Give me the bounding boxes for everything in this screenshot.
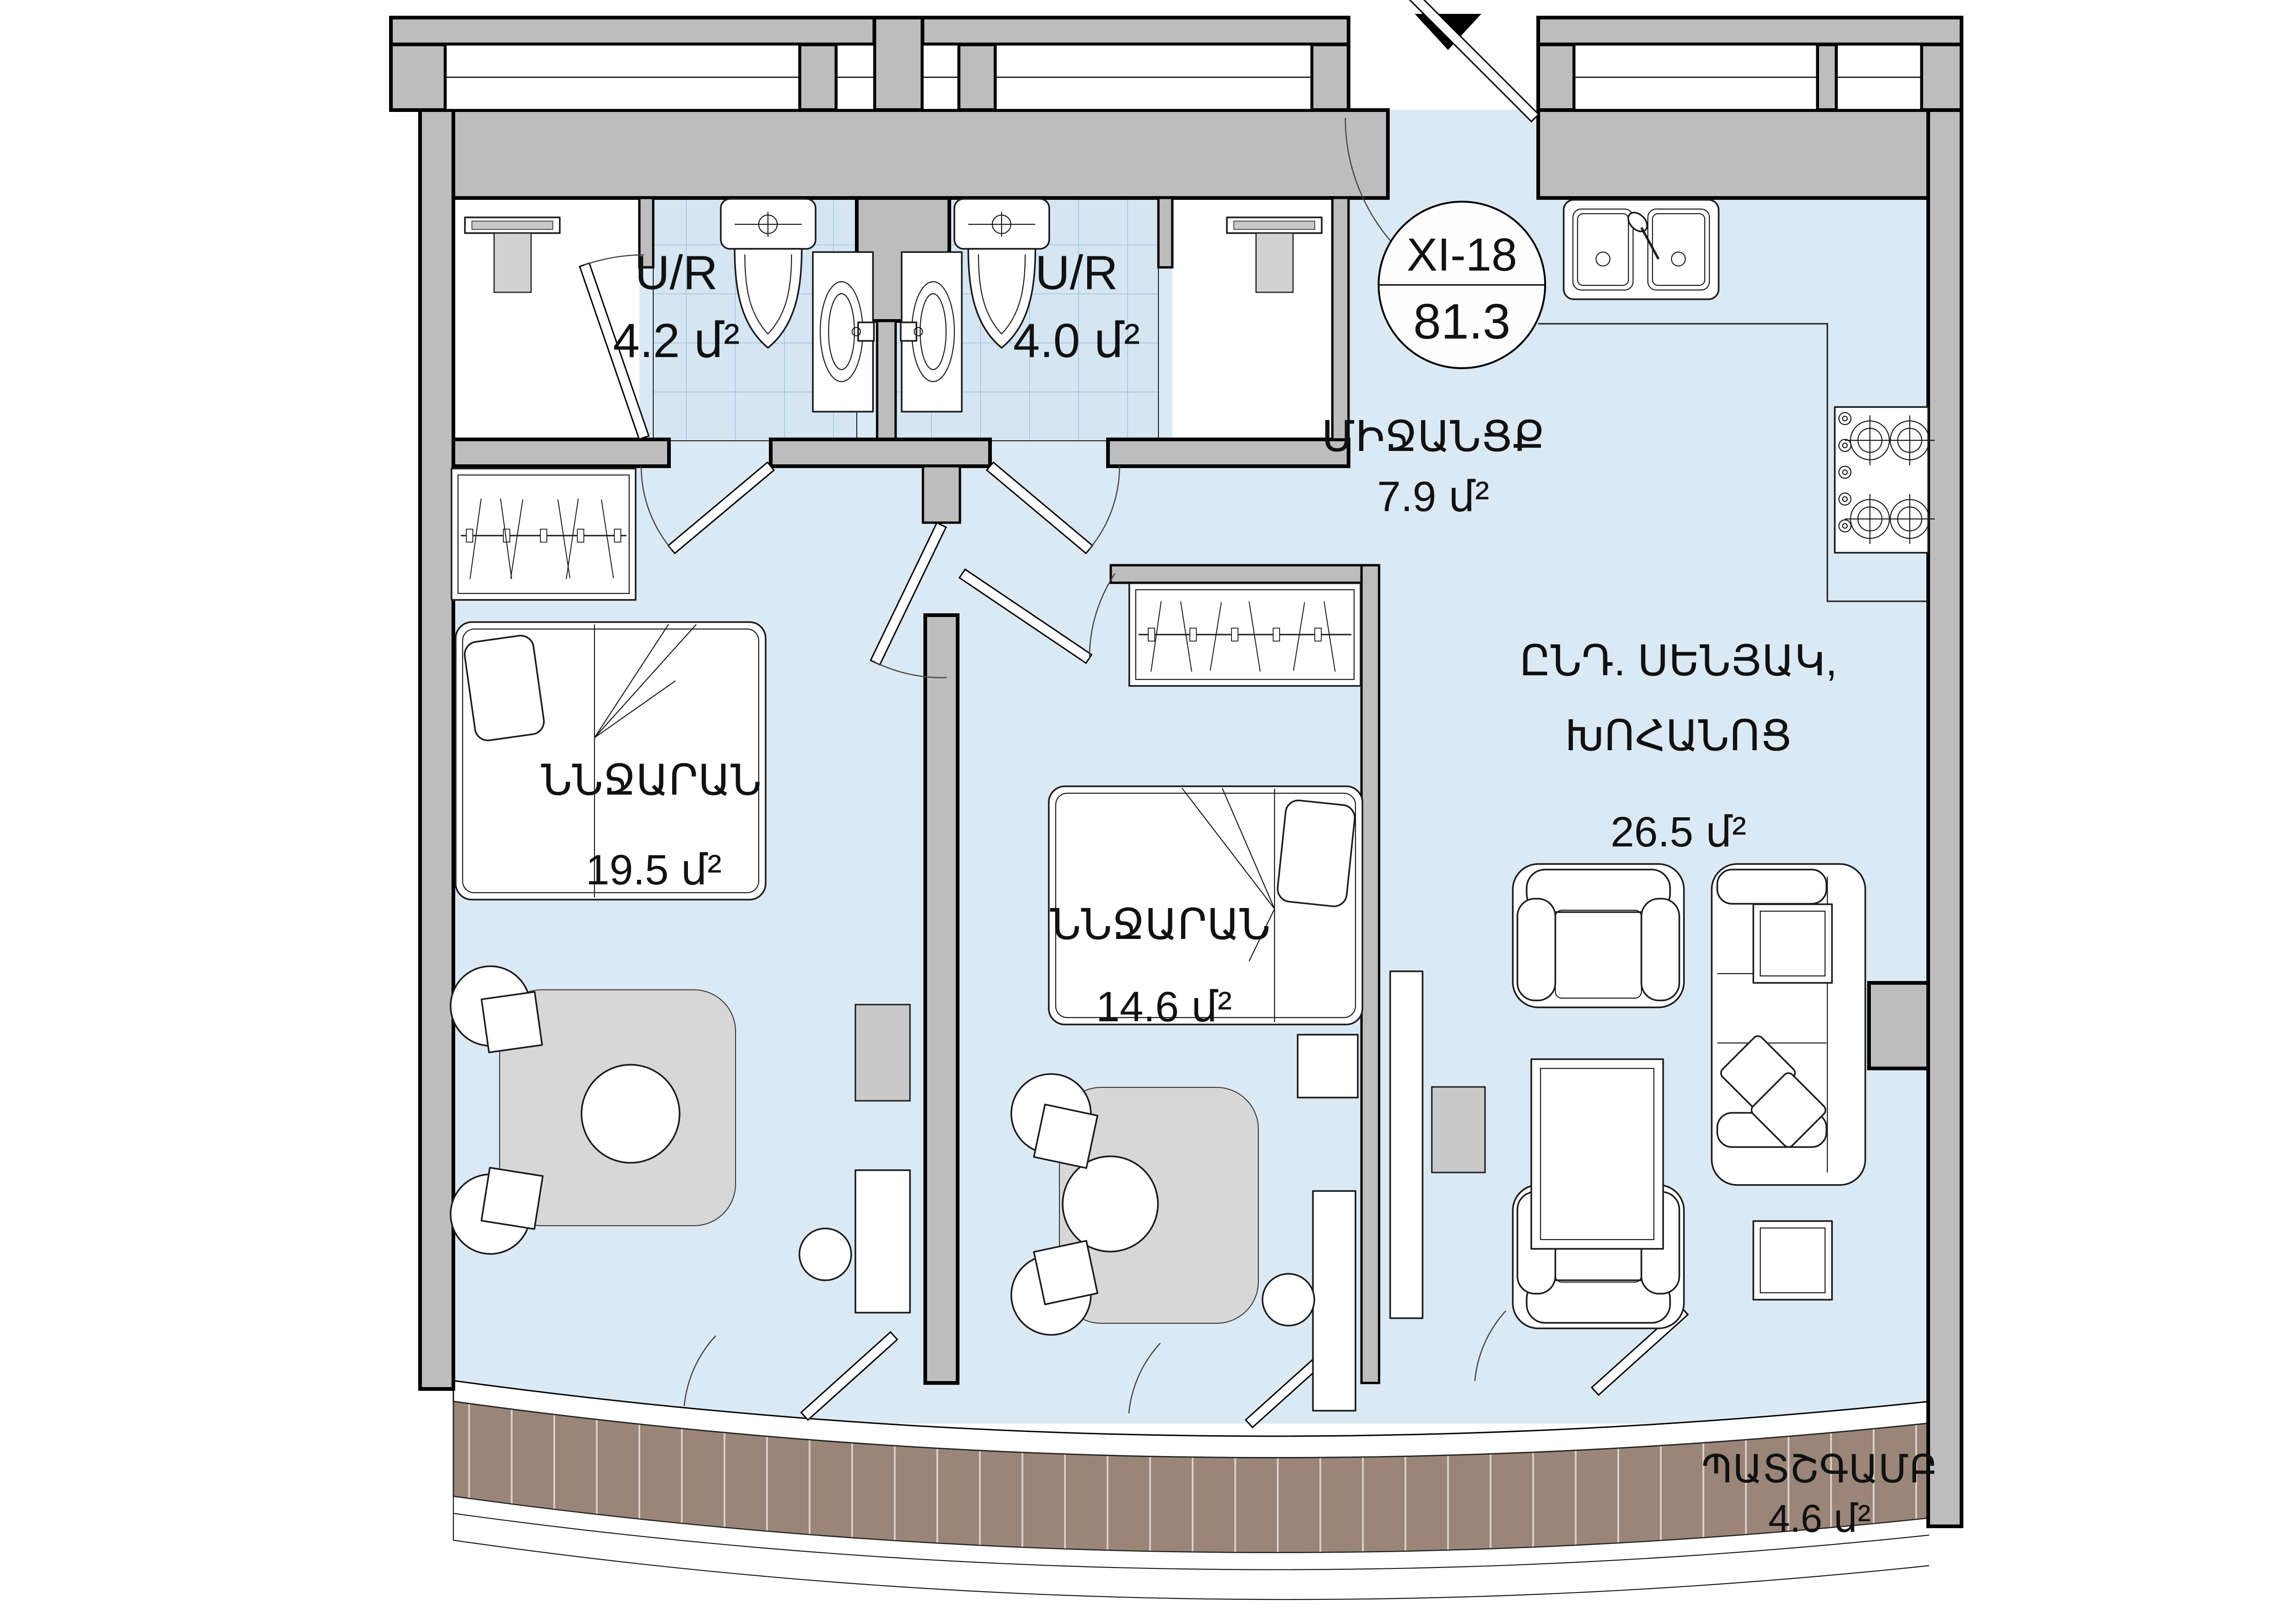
- wall-left-exterior: [420, 110, 453, 1389]
- room-label-bath1-area: 4.2 մ²: [613, 314, 740, 368]
- unit-total-area: 81.3: [1413, 293, 1510, 349]
- room-label-bedroom1-name: ՆՆՋԱՐԱՆ: [541, 757, 762, 804]
- wall-segment: [1817, 44, 1837, 110]
- windows: [446, 44, 1921, 110]
- room-label-bath2-name: U/R: [1035, 246, 1118, 300]
- wall-bedroom1-partition: [925, 615, 958, 1383]
- wall-segment: [1538, 44, 1574, 110]
- wall-pier: [1869, 983, 1928, 1068]
- tv-bench: [1390, 971, 1423, 1318]
- room-label-hallway-area: 7.9 մ²: [1377, 473, 1489, 520]
- room-label-bath2-area: 4.0 մ²: [1013, 314, 1140, 368]
- unit-code: XI-18: [1406, 229, 1517, 281]
- wall-bedroom2-partition: [1111, 565, 1379, 583]
- wall-segment: [420, 110, 1388, 198]
- dresser: [855, 1005, 910, 1101]
- wall-segment: [1332, 198, 1349, 439]
- wall-segment: [1108, 439, 1349, 466]
- floor-plan-canvas: XI-18 81.3 U/R 4.2 մ² U/R 4.0 մ² ՄԻՋԱՆՑՔ…: [0, 0, 2296, 1623]
- round-table: [582, 1065, 680, 1163]
- wall-segment: [799, 44, 836, 110]
- wall-segment: [771, 439, 990, 466]
- tv: [1432, 1087, 1485, 1173]
- desk: [855, 1170, 910, 1313]
- room-label-bedroom2-name: ՆՆՋԱՐԱՆ: [1050, 901, 1271, 948]
- wall-bedroom2-partition: [1362, 565, 1379, 1383]
- wall-segment: [1538, 110, 1962, 198]
- room-label-balcony-name: ՊԱՏՇԳԱՄԲ: [1702, 1447, 1937, 1491]
- room-label-living-name1: ԸՆԴ. ՍԵՆՅԱԿ,: [1520, 637, 1838, 685]
- wall-segment: [453, 439, 669, 466]
- wardrobe-1: [452, 469, 636, 600]
- wall-segment: [874, 18, 922, 110]
- bath-sink-icon: [813, 252, 874, 412]
- room-label-living-name2: ԽՈՀԱՆՈՑ: [1565, 712, 1792, 759]
- entry-floor: [1388, 110, 1538, 200]
- stool: [1262, 1274, 1314, 1326]
- nightstand: [1298, 1035, 1358, 1098]
- wall-segment: [1312, 44, 1349, 110]
- room-closet-1: [453, 198, 639, 441]
- wall-segment: [1921, 44, 1962, 110]
- stove-icon: [1835, 407, 1935, 553]
- bath-sink-icon: [901, 252, 962, 412]
- wall-segment: [391, 18, 1349, 44]
- wardrobe-2: [1129, 583, 1361, 686]
- wall-right-exterior: [1928, 110, 1962, 1526]
- armchair: [1513, 864, 1684, 1007]
- wall-segment: [877, 321, 896, 441]
- wall-segment: [959, 44, 996, 110]
- wall-segment: [1158, 198, 1172, 267]
- side-table: [1753, 1221, 1832, 1300]
- room-label-bath1-name: U/R: [635, 246, 718, 300]
- side-table: [1753, 904, 1832, 983]
- room-label-balcony-area: 4.6 մ²: [1768, 1497, 1870, 1540]
- round-table: [1063, 1156, 1158, 1252]
- room-label-living-area: 26.5 մ²: [1610, 808, 1746, 856]
- stool: [799, 1228, 851, 1280]
- wall-segment: [391, 44, 446, 110]
- room-label-bedroom1-area: 19.5 մ²: [586, 846, 722, 894]
- wall-segment: [1538, 18, 1962, 44]
- room-label-bedroom2-area: 14.6 մ²: [1096, 983, 1232, 1031]
- coffee-table: [1531, 1059, 1663, 1249]
- kitchen-sink-icon: [1564, 200, 1719, 299]
- wall-segment: [923, 466, 960, 523]
- unit-badge[interactable]: XI-18 81.3: [1379, 202, 1545, 368]
- desk: [1313, 1191, 1355, 1411]
- room-closet-2: [1172, 198, 1332, 441]
- room-label-hallway-name: ՄԻՋԱՆՑՔ: [1322, 413, 1545, 460]
